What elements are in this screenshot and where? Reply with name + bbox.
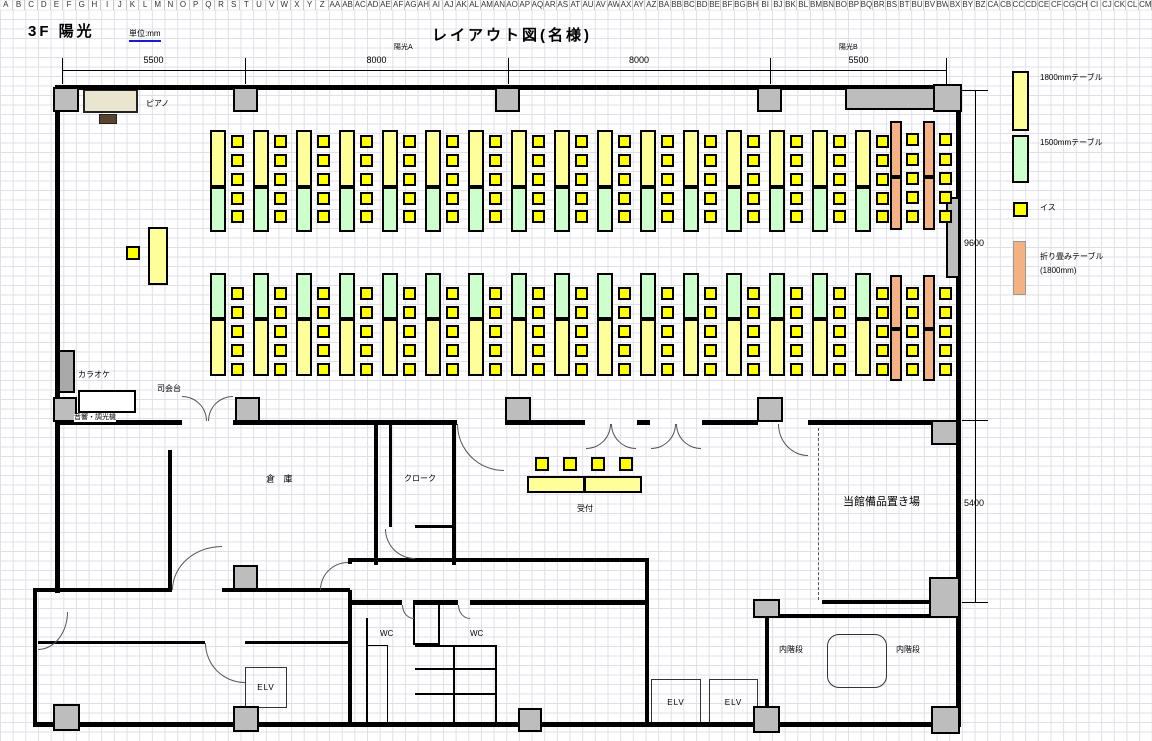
table-1500 [425, 273, 441, 319]
pillar [933, 84, 962, 112]
door-arc [402, 605, 414, 619]
column-header[interactable]: AG [405, 0, 418, 10]
column-header[interactable]: BN [823, 0, 836, 10]
column-header[interactable]: AK [456, 0, 469, 10]
chair [532, 154, 545, 167]
chair [317, 154, 330, 167]
chair [661, 306, 674, 319]
table-1800 [339, 319, 355, 376]
folding-table [923, 177, 935, 230]
chair [939, 287, 952, 300]
wall [245, 641, 350, 644]
table-1500 [468, 273, 484, 319]
chair [274, 154, 287, 167]
chair [704, 344, 717, 357]
column-header[interactable]: AO [506, 0, 519, 10]
column-header[interactable]: J [114, 0, 127, 10]
table-1500 [640, 273, 656, 319]
door-arc [182, 396, 207, 421]
column-header[interactable]: AW [608, 0, 621, 10]
column-header[interactable]: BW [937, 0, 950, 10]
chair [876, 135, 889, 148]
column-header[interactable]: V [266, 0, 279, 10]
chair [317, 344, 330, 357]
stair-core [827, 634, 887, 688]
wall [233, 420, 457, 425]
column-header[interactable]: CF [1050, 0, 1063, 10]
chair [704, 173, 717, 186]
column-header[interactable]: B [13, 0, 26, 10]
column-header[interactable]: AP [519, 0, 532, 10]
chair [661, 325, 674, 338]
pillar [233, 87, 258, 112]
table-1500 [855, 273, 871, 319]
chair [575, 306, 588, 319]
chair [833, 173, 846, 186]
pillar [753, 599, 780, 618]
table-1500 [726, 273, 742, 319]
chair [833, 306, 846, 319]
column-header[interactable]: K [127, 0, 140, 10]
dim-top-8000-right: 8000 [508, 55, 770, 65]
chair [231, 287, 244, 300]
chair [661, 210, 674, 223]
column-header[interactable]: S [228, 0, 241, 10]
chair [939, 133, 952, 146]
column-header[interactable]: P [190, 0, 203, 10]
table-1800 [296, 319, 312, 376]
table-1500 [210, 187, 226, 232]
chair [790, 344, 803, 357]
chair [939, 325, 952, 338]
chair [489, 344, 502, 357]
column-header[interactable]: F [63, 0, 76, 10]
column-header[interactable]: T [240, 0, 253, 10]
column-header[interactable]: H [89, 0, 102, 10]
chair [876, 154, 889, 167]
chair [790, 287, 803, 300]
equipment-storage-label: 当館備品置き場 [843, 496, 920, 508]
wall [55, 85, 60, 593]
dim-top-8000-left: 8000 [245, 55, 508, 65]
column-header[interactable]: BL [797, 0, 810, 10]
column-header[interactable]: BS [886, 0, 899, 10]
door-arc [778, 424, 808, 456]
column-header[interactable]: CB [1000, 0, 1013, 10]
table-1500 [425, 187, 441, 232]
pillar [929, 577, 960, 618]
table-1800 [812, 319, 828, 376]
column-header[interactable]: BI [759, 0, 772, 10]
table-1800 [683, 319, 699, 376]
column-header[interactable]: CL [1126, 0, 1139, 10]
wc-right-label: WC [470, 630, 483, 639]
chair [126, 246, 140, 260]
door-arc [38, 612, 68, 650]
chair [704, 287, 717, 300]
chair [876, 344, 889, 357]
chair [575, 135, 588, 148]
chair [939, 363, 952, 376]
table-1500 [597, 187, 613, 232]
chair [403, 344, 416, 357]
column-header[interactable]: E [51, 0, 64, 10]
column-header[interactable]: Z [316, 0, 329, 10]
chair [231, 210, 244, 223]
chair [446, 363, 459, 376]
chair [274, 363, 287, 376]
table-1800 [812, 130, 828, 187]
column-header[interactable]: BD [696, 0, 709, 10]
chair [446, 287, 459, 300]
chair [618, 306, 631, 319]
column-header[interactable]: BF [721, 0, 734, 10]
chair [661, 173, 674, 186]
table-1500 [812, 273, 828, 319]
door-arc [651, 424, 676, 449]
pillar [518, 708, 542, 732]
wc-left-label: WC [380, 630, 393, 639]
chair [489, 135, 502, 148]
column-header[interactable]: AV [595, 0, 608, 10]
folding-table [923, 329, 935, 381]
column-header[interactable]: BT [899, 0, 912, 10]
chair [317, 173, 330, 186]
column-header[interactable]: AB [342, 0, 355, 10]
table-1500 [855, 187, 871, 232]
chair [231, 344, 244, 357]
chair [591, 457, 605, 471]
table-1500 [382, 187, 398, 232]
column-header[interactable]: BH [747, 0, 760, 10]
column-header[interactable]: AI [430, 0, 443, 10]
chair [446, 192, 459, 205]
column-header[interactable]: X [291, 0, 304, 10]
chair [575, 210, 588, 223]
column-header[interactable]: AT [570, 0, 583, 10]
column-header[interactable]: CG [1063, 0, 1076, 10]
chair [876, 306, 889, 319]
chair [489, 173, 502, 186]
chair [317, 325, 330, 338]
column-header[interactable]: AA [329, 0, 342, 10]
column-header[interactable]: AF [392, 0, 405, 10]
table-1500 [296, 187, 312, 232]
chair [360, 154, 373, 167]
column-header[interactable]: AQ [532, 0, 545, 10]
column-header[interactable]: CH [1076, 0, 1089, 10]
table-1800 [554, 130, 570, 187]
table-1800 [597, 130, 613, 187]
folding-table [890, 275, 902, 329]
chair [403, 135, 416, 148]
column-header[interactable]: G [76, 0, 89, 10]
chair [532, 210, 545, 223]
table-1800 [253, 319, 269, 376]
chair [939, 306, 952, 319]
chair [535, 457, 549, 471]
pillar [53, 704, 80, 731]
chair [747, 210, 760, 223]
table-1800 [640, 319, 656, 376]
table-1500 [597, 273, 613, 319]
chair [317, 192, 330, 205]
wall [702, 420, 758, 425]
mc-stand-label: 司会台 [157, 385, 181, 394]
chair [532, 344, 545, 357]
legend-label-chair: イス [1040, 204, 1056, 213]
chair [833, 135, 846, 148]
column-header[interactable]: R [215, 0, 228, 10]
column-header[interactable]: U [253, 0, 266, 10]
chair [274, 173, 287, 186]
column-header[interactable]: AU [582, 0, 595, 10]
door-arc [205, 643, 245, 683]
chair [446, 135, 459, 148]
wall [470, 600, 648, 605]
column-header[interactable]: AS [557, 0, 570, 10]
chair [906, 172, 919, 185]
pillar [757, 87, 782, 112]
table-1800 [726, 130, 742, 187]
legend-swatch-chair [1013, 202, 1028, 217]
table-1500 [683, 187, 699, 232]
column-header[interactable]: BP [848, 0, 861, 10]
chair [575, 287, 588, 300]
chair [747, 287, 760, 300]
wall-line [415, 645, 497, 647]
wall [415, 525, 452, 528]
chair [906, 287, 919, 300]
chair [906, 210, 919, 223]
piano-label: ピアノ [146, 100, 169, 109]
pillar [931, 420, 958, 445]
pillar [53, 87, 79, 112]
pillar [845, 87, 935, 110]
pillar [235, 397, 260, 422]
wall-line [962, 602, 988, 603]
pillar [233, 565, 258, 590]
column-header[interactable]: A [0, 0, 13, 10]
wall-line [495, 645, 497, 723]
column-header[interactable]: BQ [861, 0, 874, 10]
chair [274, 306, 287, 319]
chair [939, 153, 952, 166]
column-header[interactable]: CD [1025, 0, 1038, 10]
column-header[interactable]: BZ [975, 0, 988, 10]
column-header[interactable]: BV [924, 0, 937, 10]
column-header[interactable]: BA [658, 0, 671, 10]
chair [360, 287, 373, 300]
column-header[interactable]: BK [785, 0, 798, 10]
chair [906, 344, 919, 357]
wall-line [62, 58, 63, 84]
chair [876, 192, 889, 205]
chair [661, 135, 674, 148]
column-header[interactable]: O [177, 0, 190, 10]
legend-swatch-1800-table [1012, 71, 1029, 131]
table-1500 [769, 273, 785, 319]
column-header[interactable]: BU [911, 0, 924, 10]
column-header[interactable]: Y [304, 0, 317, 10]
pillar [757, 397, 783, 422]
chair [833, 325, 846, 338]
wall [348, 600, 402, 605]
page-title: レイアウト図(名様) [432, 24, 592, 45]
column-header[interactable]: BO [835, 0, 848, 10]
wall [956, 85, 961, 727]
column-header[interactable]: AR [544, 0, 557, 10]
chair [618, 344, 631, 357]
chair [532, 363, 545, 376]
chair [704, 210, 717, 223]
column-header[interactable]: AL [468, 0, 481, 10]
stairs-label-right: 内階段 [896, 646, 920, 655]
chair [618, 210, 631, 223]
wall-line [415, 693, 497, 695]
chair [906, 133, 919, 146]
table-1800 [425, 319, 441, 376]
chair [661, 192, 674, 205]
column-header[interactable]: N [165, 0, 178, 10]
column-header[interactable]: CI [1088, 0, 1101, 10]
column-header[interactable]: I [101, 0, 114, 10]
karaoke-label: カラオケ [78, 371, 110, 380]
column-header[interactable]: M [152, 0, 165, 10]
table-1800 [382, 319, 398, 376]
chair [906, 153, 919, 166]
column-header[interactable]: AJ [443, 0, 456, 10]
wall [822, 600, 938, 604]
piano-bench [99, 114, 117, 124]
elevator-left: ELV [245, 667, 287, 708]
chair [704, 363, 717, 376]
chair [231, 154, 244, 167]
column-header[interactable]: Q [203, 0, 216, 10]
reception-label: 受付 [577, 505, 593, 514]
column-header[interactable]: C [25, 0, 38, 10]
chair [489, 325, 502, 338]
folding-table [890, 121, 902, 177]
chair [618, 135, 631, 148]
column-header[interactable]: AC [354, 0, 367, 10]
column-header[interactable]: BY [962, 0, 975, 10]
chair [939, 210, 952, 223]
column-header[interactable]: BM [810, 0, 823, 10]
chair [939, 191, 952, 204]
chair [231, 192, 244, 205]
column-header[interactable]: BB [671, 0, 684, 10]
column-header[interactable]: W [278, 0, 291, 10]
dim-top-5500-right: 5500 [770, 55, 947, 65]
column-header[interactable]: AM [481, 0, 494, 10]
chair [532, 287, 545, 300]
chair [317, 363, 330, 376]
chair [360, 173, 373, 186]
table-1800 [511, 319, 527, 376]
table-1800 [584, 476, 642, 493]
table-1800 [554, 319, 570, 376]
column-header[interactable]: AX [620, 0, 633, 10]
table-1800 [253, 130, 269, 187]
pillar [505, 397, 531, 422]
chair [360, 363, 373, 376]
column-header[interactable]: AD [367, 0, 380, 10]
column-header[interactable]: BX [949, 0, 962, 10]
column-header[interactable]: BC [683, 0, 696, 10]
wall-line [415, 668, 497, 670]
chair [360, 135, 373, 148]
wall [33, 588, 172, 592]
column-header[interactable]: BE [709, 0, 722, 10]
column-header[interactable]: BG [734, 0, 747, 10]
chair [403, 192, 416, 205]
table-1800 [855, 130, 871, 187]
column-header[interactable]: AN [494, 0, 507, 10]
chair [317, 135, 330, 148]
chair [790, 154, 803, 167]
column-header[interactable]: CM [1139, 0, 1152, 10]
chair [274, 287, 287, 300]
column-header[interactable]: AH [418, 0, 431, 10]
table-1500 [554, 273, 570, 319]
table-1800 [296, 130, 312, 187]
chair [618, 173, 631, 186]
chair [317, 306, 330, 319]
wall-line [453, 645, 455, 723]
chair [747, 154, 760, 167]
table-1500 [511, 187, 527, 232]
legend-label-folding-table: 折り畳みテーブル [1040, 253, 1104, 262]
table-1500 [640, 187, 656, 232]
wc-stall [366, 645, 388, 723]
table-1800 [769, 319, 785, 376]
column-header[interactable]: D [38, 0, 51, 10]
column-header[interactable]: AY [633, 0, 646, 10]
table-1800 [210, 319, 226, 376]
chair [747, 363, 760, 376]
chair [876, 325, 889, 338]
chair [360, 325, 373, 338]
folding-table [890, 177, 902, 230]
column-header[interactable]: CC [1013, 0, 1026, 10]
chair [489, 192, 502, 205]
column-header[interactable]: CK [1114, 0, 1127, 10]
column-header[interactable]: BR [873, 0, 886, 10]
unit-label: 単位:mm [129, 30, 161, 42]
chair [403, 173, 416, 186]
wall [348, 558, 648, 562]
chair [532, 325, 545, 338]
elevator-left-label: ELV [257, 683, 275, 692]
door-arc [676, 424, 701, 449]
folding-table [890, 329, 902, 381]
cloak-room-label: クローク [404, 475, 436, 484]
column-header[interactable]: BJ [772, 0, 785, 10]
column-header[interactable]: CJ [1101, 0, 1114, 10]
table-1800 [855, 319, 871, 376]
wall [452, 423, 456, 565]
column-header[interactable]: AZ [645, 0, 658, 10]
column-header[interactable]: L [139, 0, 152, 10]
column-header[interactable]: AE [380, 0, 393, 10]
chair [704, 192, 717, 205]
column-header[interactable]: CA [987, 0, 1000, 10]
door-arc [208, 396, 233, 421]
column-header[interactable]: CE [1038, 0, 1051, 10]
wall-line [508, 58, 509, 84]
chair [661, 363, 674, 376]
